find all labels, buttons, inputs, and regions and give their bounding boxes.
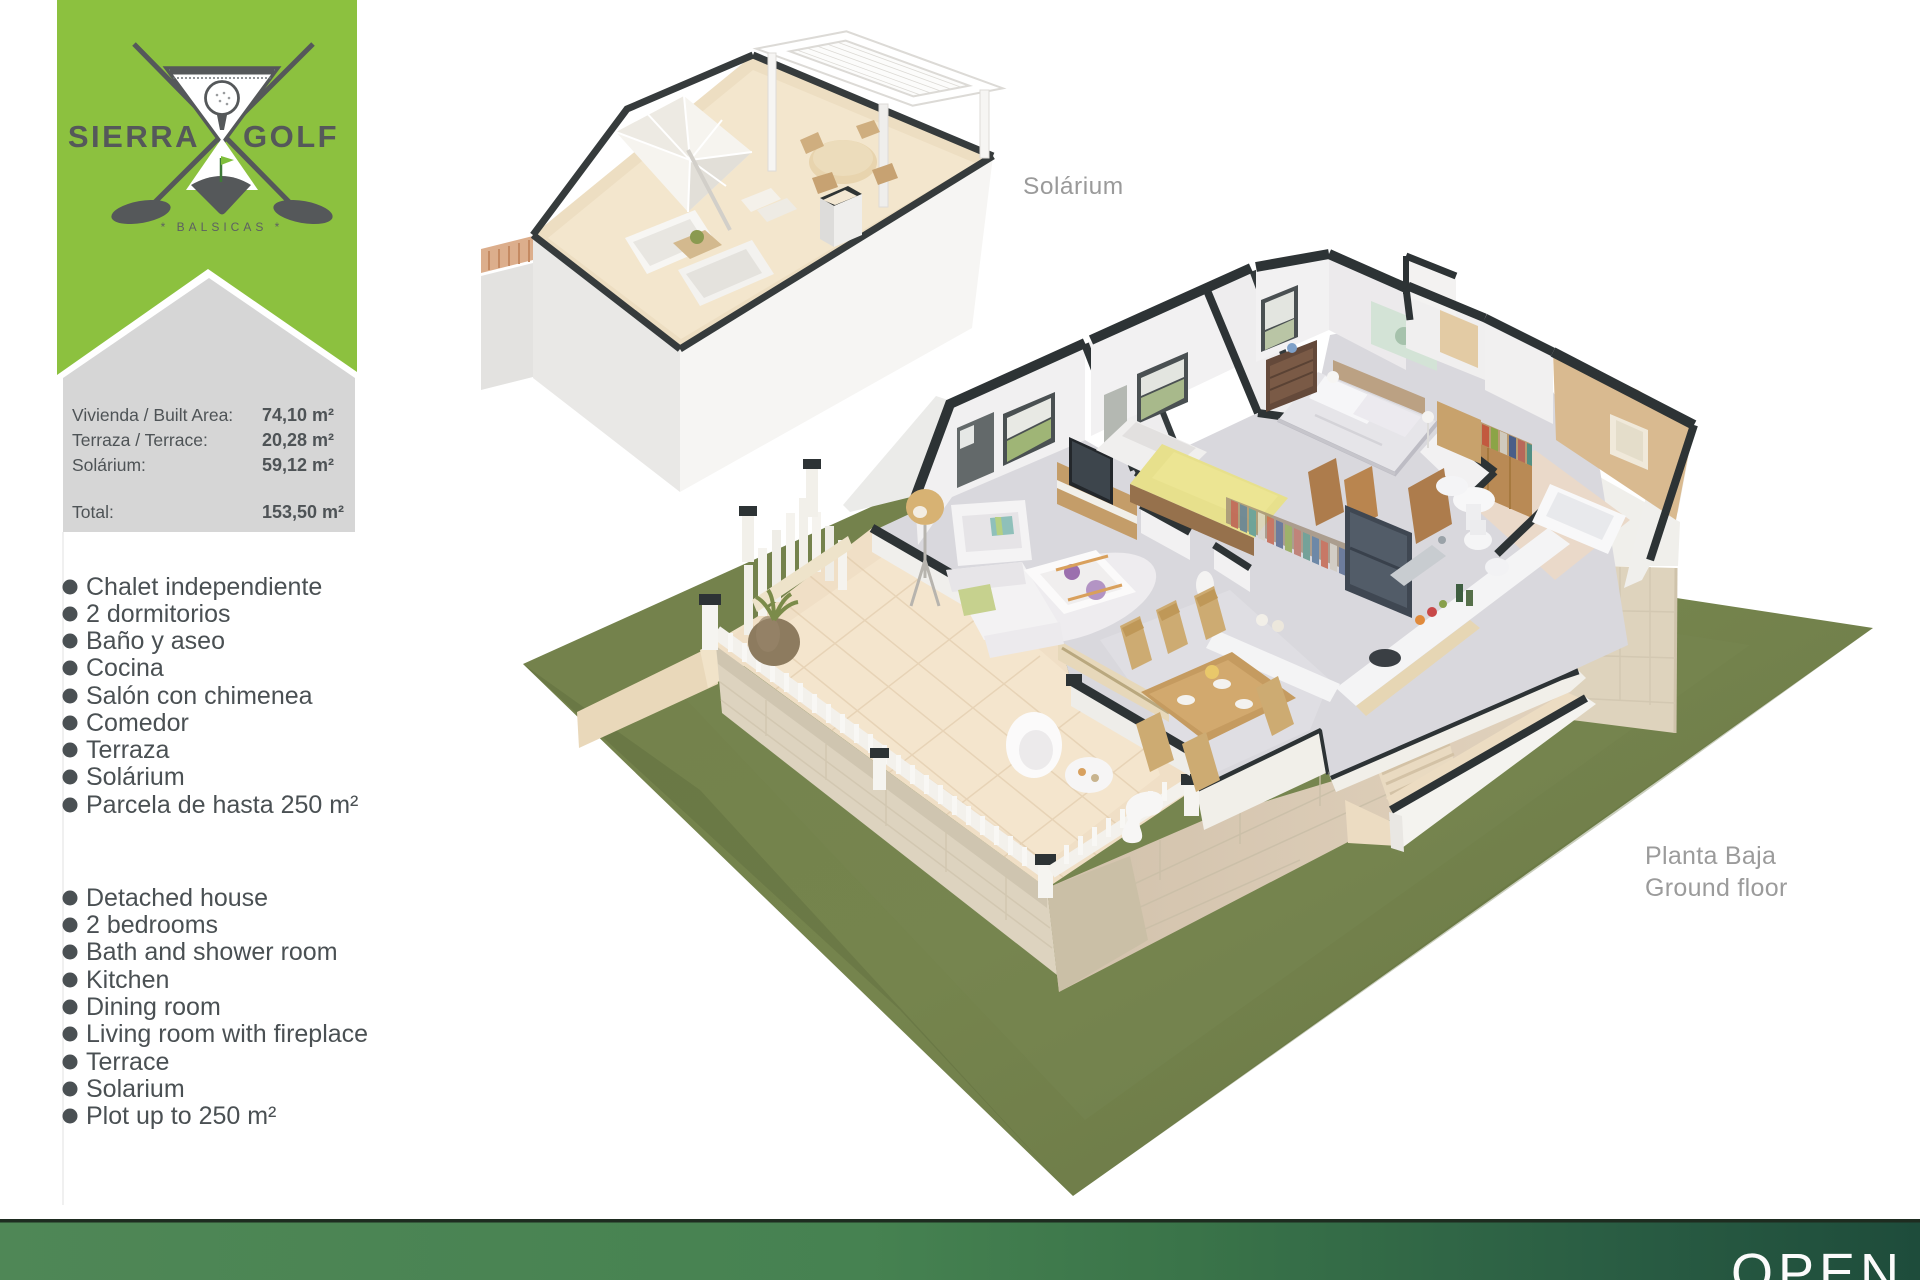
svg-text:Parcela de hasta 250 m²: Parcela de hasta 250 m² (86, 791, 358, 819)
svg-text:Comedor: Comedor (86, 709, 189, 737)
svg-text:Solarium: Solarium (86, 1075, 185, 1103)
svg-text:74,10 m²: 74,10 m² (262, 405, 334, 425)
svg-text:Detached house: Detached house (86, 884, 268, 912)
svg-text:Cocina: Cocina (86, 654, 164, 682)
svg-text:Vivienda / Built Area:: Vivienda / Built Area: (72, 405, 233, 425)
svg-text:Living room with fireplace: Living room with fireplace (86, 1020, 368, 1048)
svg-text:2 bedrooms: 2 bedrooms (86, 911, 218, 939)
svg-text:153,50 m²: 153,50 m² (262, 502, 344, 522)
svg-text:2 dormitorios: 2 dormitorios (86, 600, 231, 628)
svg-text:SIERRA: SIERRA (68, 119, 200, 154)
svg-text:Bath and shower room: Bath and shower room (86, 938, 338, 966)
svg-text:Terraza: Terraza (86, 736, 169, 764)
svg-text:Chalet independiente: Chalet independiente (86, 573, 322, 601)
svg-text:Baño y aseo: Baño y aseo (86, 627, 225, 655)
svg-text:Plot up to 250 m²: Plot up to 250 m² (86, 1102, 276, 1130)
svg-text:Solárium:: Solárium: (72, 455, 146, 475)
svg-text:Kitchen: Kitchen (86, 966, 169, 994)
svg-text:OPEN: OPEN (1731, 1243, 1904, 1280)
svg-text:Planta Baja: Planta Baja (1645, 842, 1776, 870)
svg-text:Solárium: Solárium (86, 763, 185, 791)
svg-text:Terrace: Terrace (86, 1048, 169, 1076)
svg-text:Total:: Total: (72, 502, 114, 522)
svg-text:* BALSICAS *: * BALSICAS * (161, 220, 284, 234)
svg-text:Terraza / Terrace:: Terraza / Terrace: (72, 430, 208, 450)
svg-text:Salón con chimenea: Salón con chimenea (86, 682, 313, 710)
svg-text:59,12 m²: 59,12 m² (262, 455, 334, 475)
svg-text:Ground floor: Ground floor (1645, 874, 1788, 902)
svg-text:GOLF: GOLF (243, 119, 339, 154)
svg-text:Solárium: Solárium (1023, 173, 1124, 200)
svg-text:Dining room: Dining room (86, 993, 221, 1021)
svg-text:20,28 m²: 20,28 m² (262, 430, 334, 450)
